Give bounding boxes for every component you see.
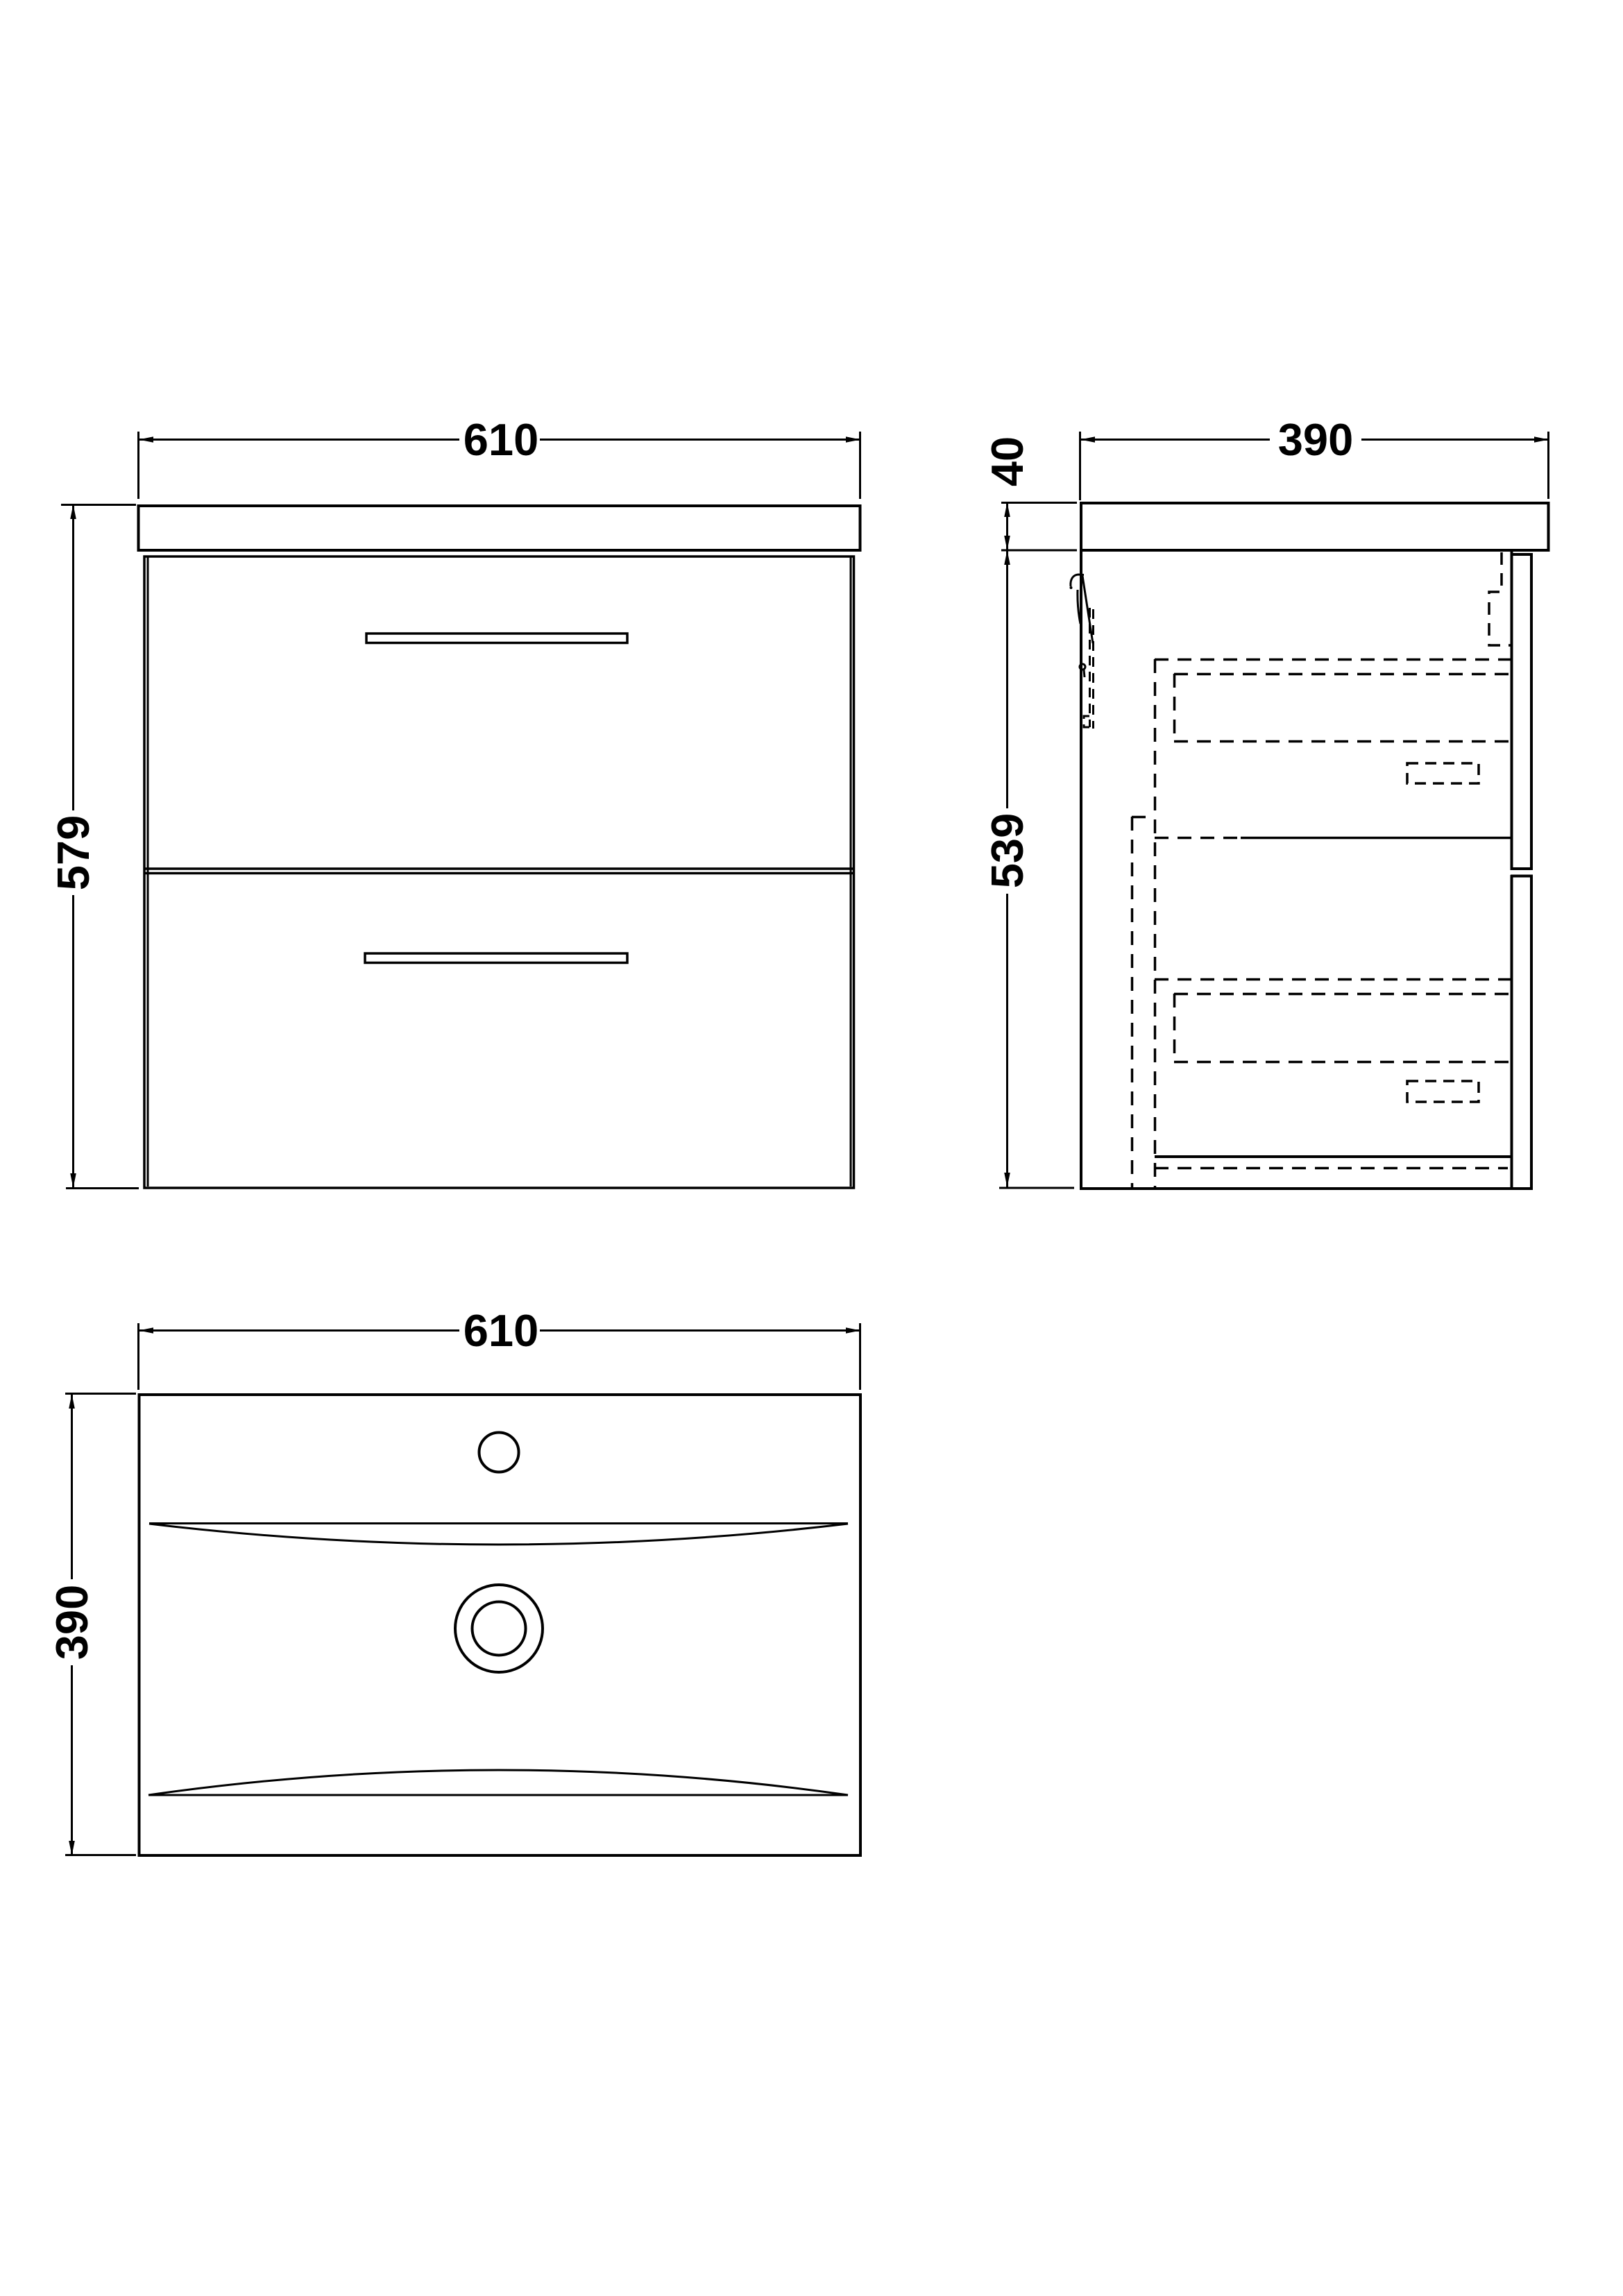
svg-text:610: 610 <box>464 414 538 465</box>
svg-text:579: 579 <box>48 815 99 890</box>
svg-text:40: 40 <box>982 436 1033 486</box>
svg-text:390: 390 <box>46 1585 97 1660</box>
svg-text:610: 610 <box>464 1305 538 1356</box>
svg-text:390: 390 <box>1278 414 1353 465</box>
svg-text:539: 539 <box>982 813 1033 888</box>
